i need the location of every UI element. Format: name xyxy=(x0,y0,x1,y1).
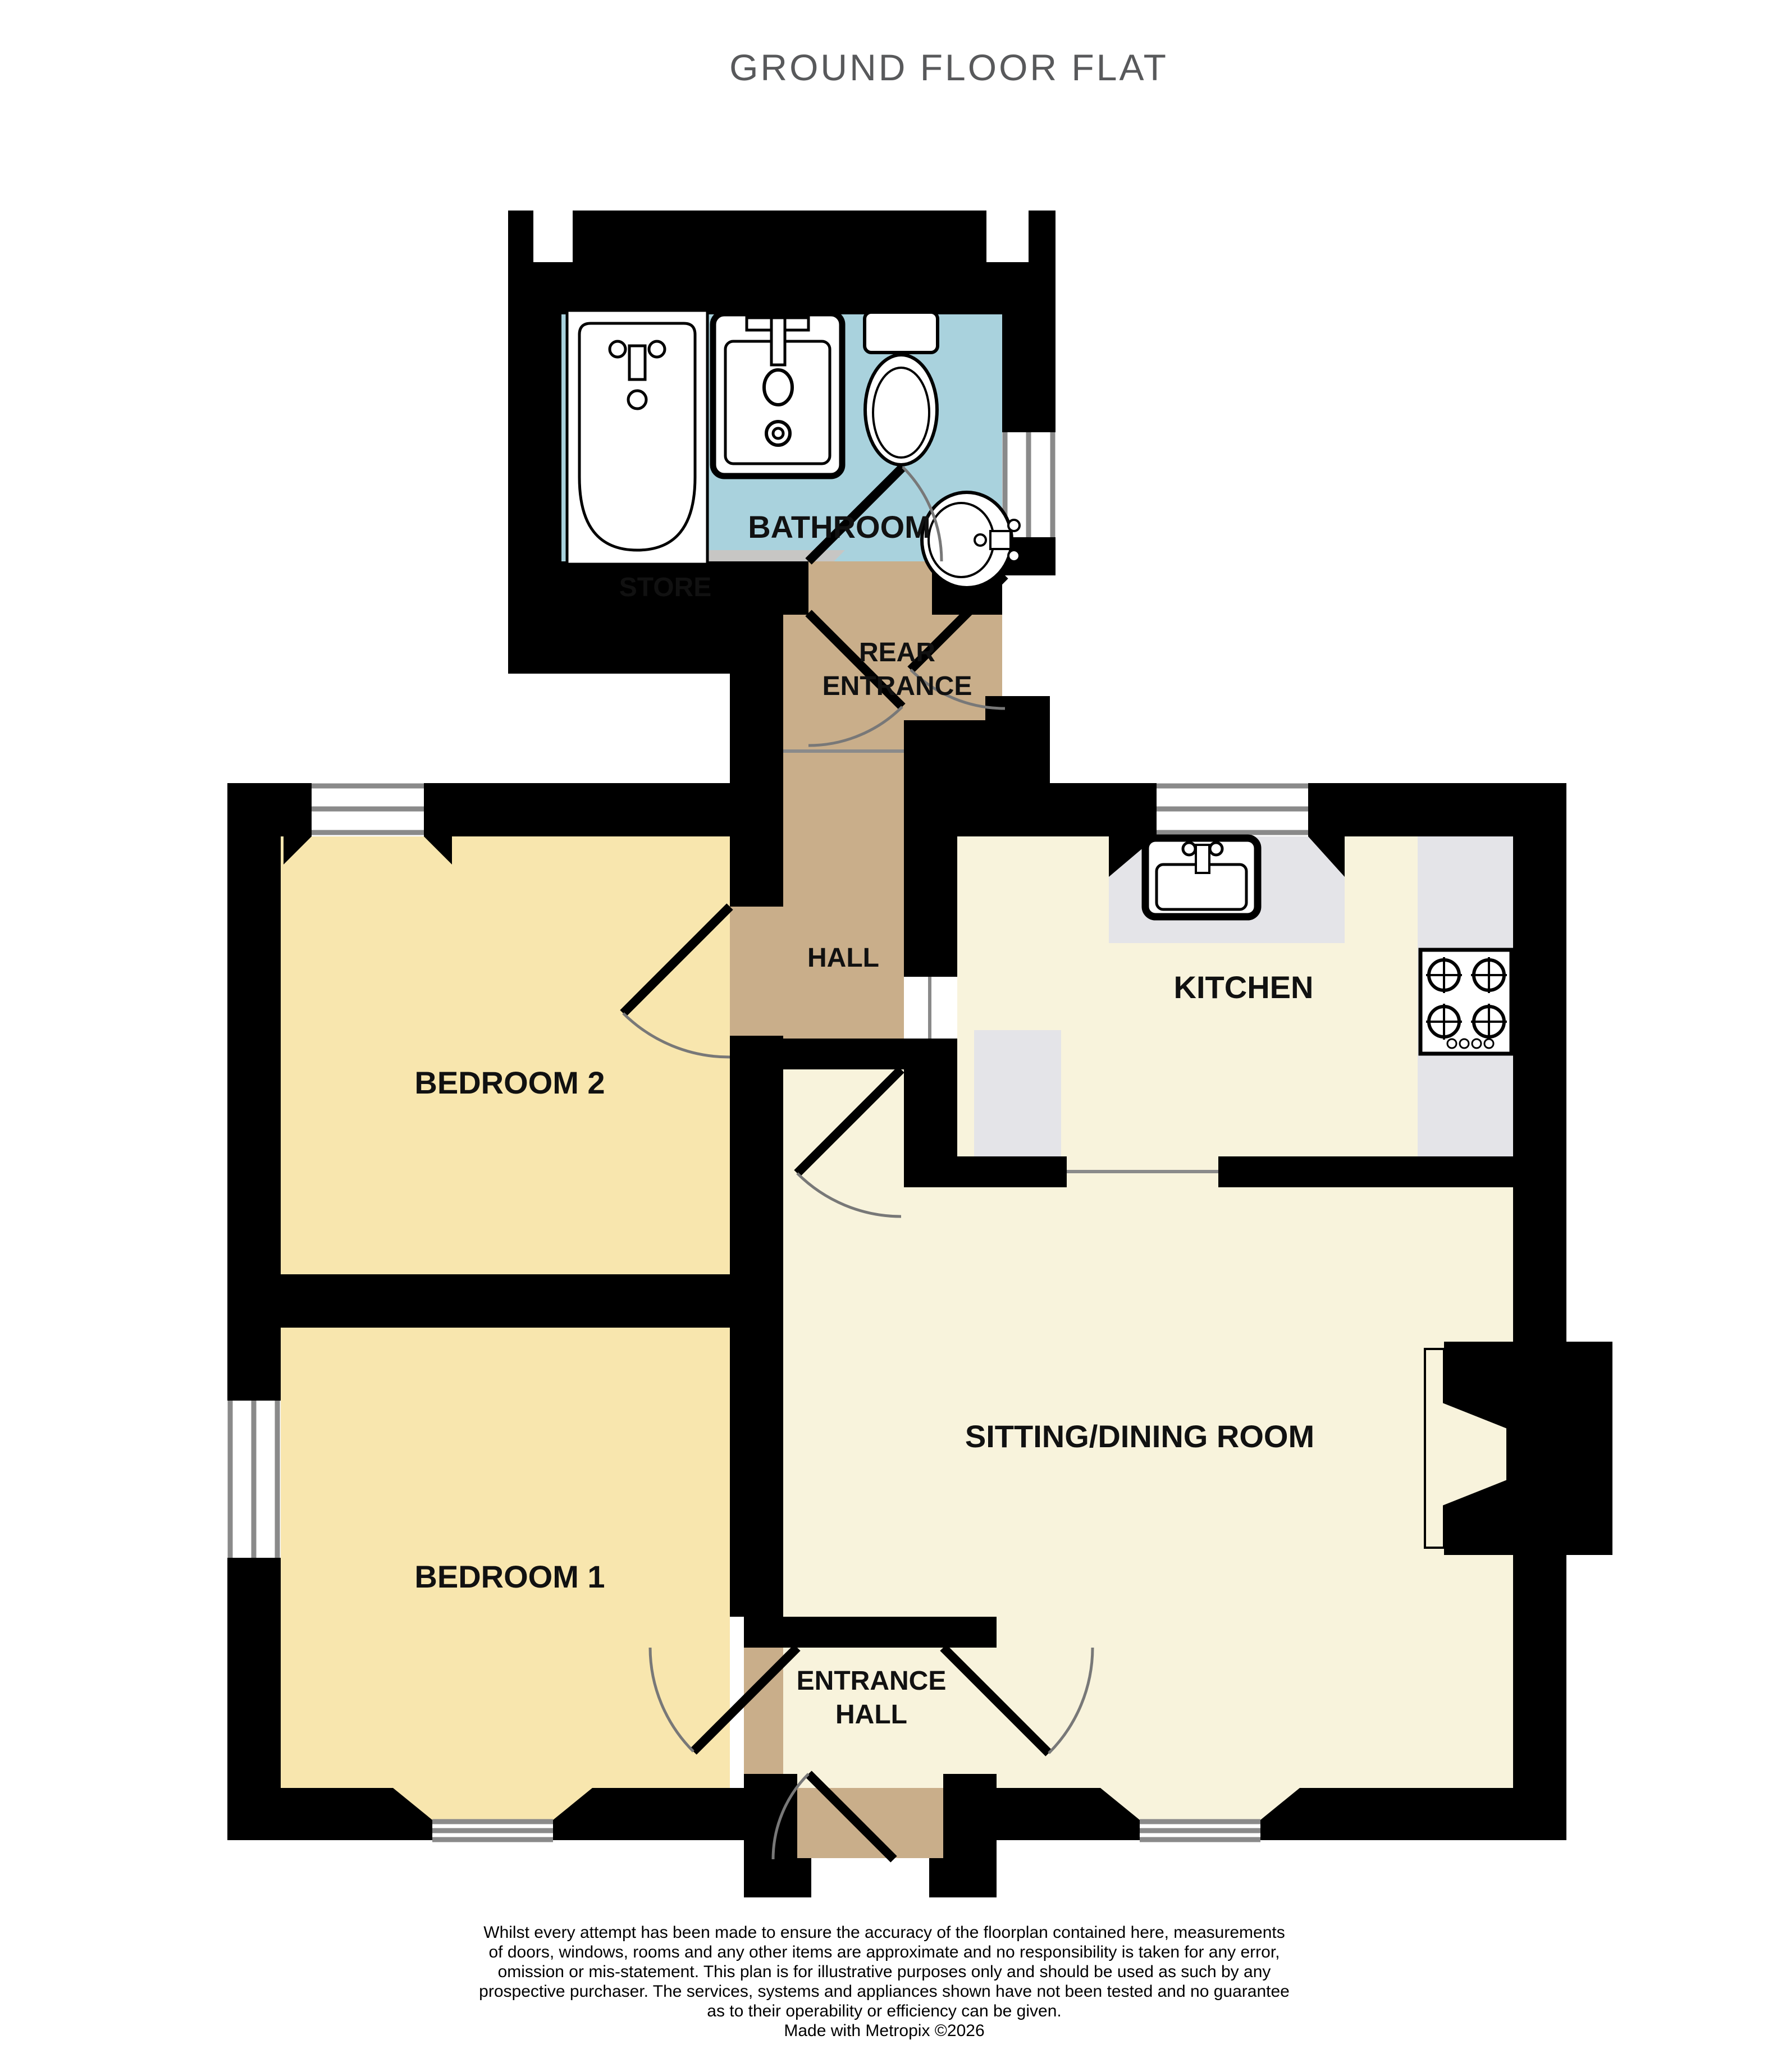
disclaimer-line: of doors, windows, rooms and any other i… xyxy=(488,1943,1280,1961)
label-rear-entrance-2: ENTRANCE xyxy=(823,671,972,701)
label-sitting-dining: SITTING/DINING ROOM xyxy=(965,1419,1314,1454)
label-hall: HALL xyxy=(807,943,879,973)
label-entrance-hall-1: ENTRANCE xyxy=(797,1666,947,1696)
cooker-hob-icon xyxy=(1420,950,1511,1054)
disclaimer: Whilst every attempt has been made to en… xyxy=(479,1923,1290,2040)
label-bathroom: BATHROOM xyxy=(748,509,931,545)
disclaimer-line: omission or mis-statement. This plan is … xyxy=(498,1963,1271,1981)
label-bedroom1: BEDROOM 1 xyxy=(414,1559,605,1594)
room-bedroom1 xyxy=(281,1328,730,1788)
label-kitchen: KITCHEN xyxy=(1174,969,1314,1005)
label-bedroom2: BEDROOM 2 xyxy=(414,1065,605,1100)
label-store: STORE xyxy=(619,573,711,602)
square-basin-icon xyxy=(713,313,842,476)
bath-icon xyxy=(567,310,707,564)
toilet-icon xyxy=(865,312,938,465)
floorplan-canvas: BATHROOM STORE REAR ENTRANCE HALL KITCHE… xyxy=(0,0,1782,2072)
label-rear-entrance-1: REAR xyxy=(859,638,935,667)
kitchen-sink-icon xyxy=(1145,838,1258,917)
counter-bottom-left xyxy=(974,1030,1061,1156)
disclaimer-line: prospective purchaser. The services, sys… xyxy=(479,1982,1290,2001)
disclaimer-line: Made with Metropix ©2026 xyxy=(784,2021,984,2040)
label-entrance-hall-2: HALL xyxy=(835,1700,907,1730)
disclaimer-line: Whilst every attempt has been made to en… xyxy=(483,1923,1285,1942)
disclaimer-line: as to their operability or efficiency ca… xyxy=(707,2002,1061,2020)
page-title: GROUND FLOOR FLAT xyxy=(729,47,1168,88)
room-bedroom2 xyxy=(281,836,730,1274)
